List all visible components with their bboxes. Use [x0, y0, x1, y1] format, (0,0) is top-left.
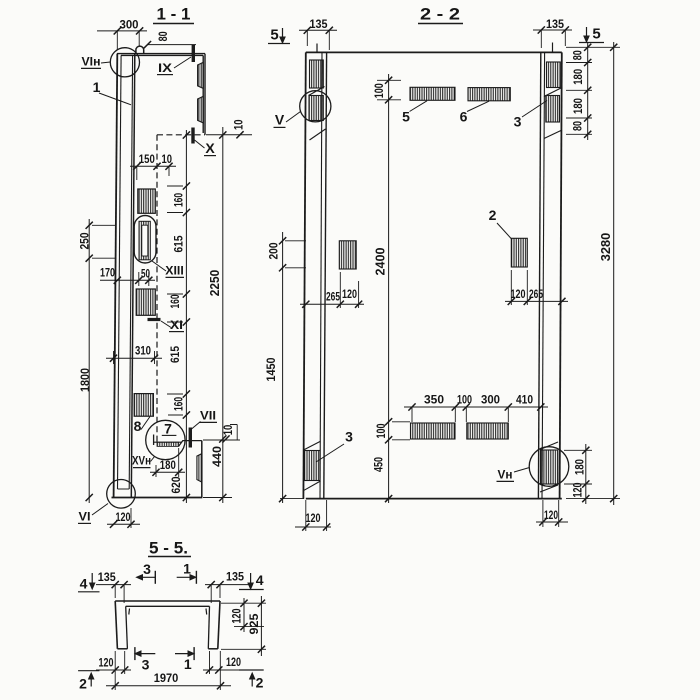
svg-text:XVн: XVн: [132, 454, 151, 468]
svg-text:VI: VI: [79, 510, 91, 524]
svg-text:135: 135: [310, 17, 328, 31]
svg-text:300: 300: [120, 18, 139, 32]
svg-text:6: 6: [460, 109, 468, 125]
svg-text:135: 135: [98, 570, 116, 584]
svg-text:1450: 1450: [264, 357, 278, 381]
svg-text:170: 170: [100, 266, 115, 280]
svg-text:120: 120: [571, 482, 585, 497]
svg-text:200: 200: [267, 242, 281, 259]
svg-text:3: 3: [514, 114, 522, 130]
svg-text:615: 615: [172, 235, 186, 252]
svg-text:180: 180: [571, 98, 585, 114]
svg-text:180: 180: [160, 458, 176, 472]
svg-text:135: 135: [546, 17, 564, 31]
svg-text:2: 2: [256, 674, 264, 690]
svg-text:450: 450: [372, 457, 386, 472]
svg-text:V: V: [275, 112, 285, 128]
svg-text:120: 120: [306, 511, 321, 525]
svg-text:615: 615: [168, 346, 182, 363]
svg-text:100: 100: [372, 83, 386, 98]
svg-text:120: 120: [116, 510, 131, 524]
svg-text:Vн: Vн: [498, 468, 513, 482]
svg-text:IX: IX: [158, 61, 173, 75]
svg-text:265: 265: [529, 287, 543, 301]
svg-text:XI: XI: [170, 318, 183, 332]
svg-text:100: 100: [457, 392, 472, 406]
svg-text:4: 4: [256, 572, 264, 588]
svg-text:1: 1: [93, 79, 101, 95]
svg-text:1800: 1800: [78, 368, 92, 392]
svg-text:135: 135: [226, 570, 244, 584]
svg-text:VIн: VIн: [82, 55, 101, 69]
svg-text:2250: 2250: [207, 270, 222, 297]
svg-text:3: 3: [142, 657, 150, 673]
svg-text:120: 120: [226, 655, 241, 669]
svg-text:80: 80: [156, 31, 170, 41]
svg-text:100: 100: [374, 423, 388, 438]
svg-text:180: 180: [571, 69, 585, 85]
svg-text:350: 350: [424, 392, 444, 406]
svg-text:XIII: XIII: [165, 264, 184, 278]
svg-text:3: 3: [345, 429, 353, 445]
svg-text:120: 120: [544, 508, 558, 522]
svg-text:3: 3: [143, 561, 151, 577]
svg-text:4: 4: [80, 575, 88, 591]
svg-text:2 - 2: 2 - 2: [420, 5, 460, 24]
svg-text:120: 120: [230, 608, 244, 623]
svg-text:2: 2: [489, 207, 497, 223]
svg-text:180: 180: [573, 459, 587, 475]
svg-text:80: 80: [571, 50, 585, 60]
svg-text:1 - 1: 1 - 1: [157, 5, 191, 24]
svg-text:1: 1: [183, 560, 191, 576]
svg-text:250: 250: [77, 232, 91, 249]
svg-text:440: 440: [210, 446, 224, 467]
svg-text:X: X: [205, 140, 215, 156]
svg-text:8: 8: [134, 418, 142, 434]
svg-text:VII: VII: [200, 409, 216, 423]
svg-text:310: 310: [135, 344, 151, 358]
svg-text:5: 5: [592, 26, 600, 43]
svg-text:160: 160: [168, 294, 182, 308]
svg-text:120: 120: [342, 287, 357, 301]
svg-text:10: 10: [232, 119, 246, 130]
svg-text:5: 5: [402, 109, 410, 125]
svg-text:300: 300: [481, 392, 500, 406]
svg-text:50: 50: [141, 266, 150, 280]
svg-text:620: 620: [169, 476, 183, 493]
svg-text:150: 150: [139, 152, 155, 166]
svg-text:2: 2: [79, 675, 87, 691]
svg-text:265: 265: [326, 289, 340, 303]
svg-text:160: 160: [172, 193, 186, 207]
svg-text:160: 160: [172, 397, 186, 411]
svg-text:10: 10: [162, 152, 173, 166]
svg-text:1: 1: [184, 656, 192, 672]
svg-text:7: 7: [164, 421, 172, 437]
svg-text:410: 410: [516, 392, 533, 406]
svg-text:120: 120: [99, 655, 114, 669]
svg-text:5 - 5.: 5 - 5.: [149, 539, 188, 558]
svg-text:925: 925: [247, 613, 261, 634]
svg-text:2400: 2400: [372, 248, 387, 276]
svg-text:80: 80: [571, 121, 585, 131]
svg-text:120: 120: [511, 287, 526, 301]
svg-text:5: 5: [270, 27, 278, 44]
svg-text:1970: 1970: [154, 671, 179, 685]
svg-text:3280: 3280: [598, 233, 613, 262]
